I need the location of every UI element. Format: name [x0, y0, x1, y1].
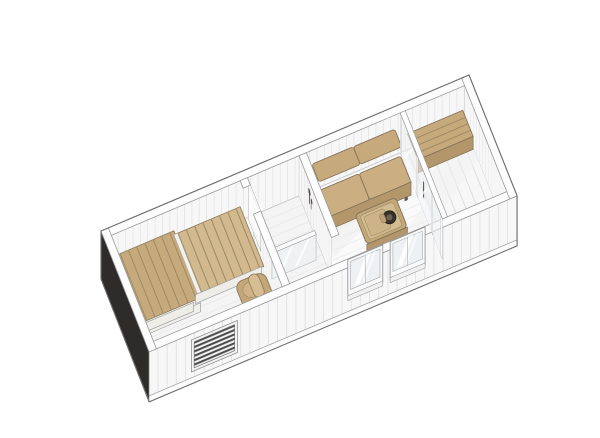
door-frame-post: [431, 191, 432, 235]
cabin-3d-plan-svg: [0, 0, 600, 438]
cabin-3d-plan-image: [0, 0, 600, 438]
door-handle: [423, 181, 424, 199]
door-frame-post: [416, 154, 417, 198]
